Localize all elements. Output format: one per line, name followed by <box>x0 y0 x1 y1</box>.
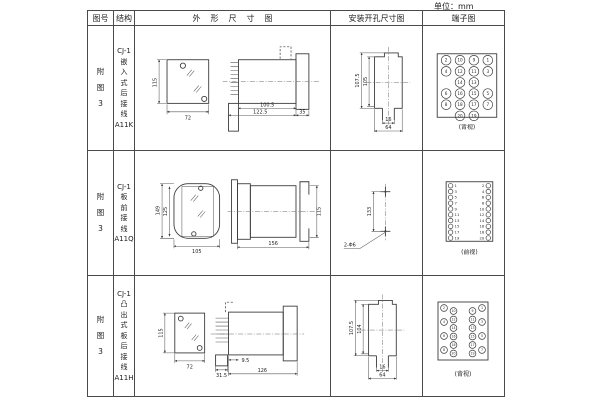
svg-text:18: 18 <box>480 231 485 235</box>
front-view: 115 72 <box>153 60 209 122</box>
side-view: 31.5 9.5 126 <box>211 302 305 379</box>
svg-text:8: 8 <box>445 102 448 107</box>
terminal-cell-row-3: 2468101214161820911131517191357 (背视) <box>423 276 504 396</box>
header-outline: 外形尺寸图 <box>135 11 331 26</box>
dim-label: 100.5 <box>260 102 274 108</box>
header-fig-no: 图号 <box>88 11 114 26</box>
mounting-cell-row-2: 133 2-Φ6 <box>331 151 423 276</box>
svg-text:4: 4 <box>443 320 445 324</box>
dim-label: 115 <box>158 328 164 337</box>
dim-label: 104 <box>357 324 363 333</box>
fig-no-row-3: 附 图 3 <box>88 276 114 396</box>
header-mounting: 安装开孔尺寸图 <box>331 11 423 26</box>
svg-text:12: 12 <box>451 318 455 322</box>
svg-text:15: 15 <box>455 225 460 229</box>
side-view: 156 115 <box>228 180 323 249</box>
terminal-diagram-a11q: 1357911131517192468101214161820 (前视) <box>423 151 504 275</box>
dim-label: 16 <box>379 365 385 371</box>
dimension-table: 图号 结构 外形尺寸图 安装开孔尺寸图 端子图 附 图 3 CJ-1 嵌 入 式… <box>87 10 505 397</box>
dim-label: 64 <box>385 125 391 131</box>
svg-text:13: 13 <box>470 326 474 330</box>
svg-text:20: 20 <box>480 236 485 240</box>
cutout-outline: 107.5 104 16 64 <box>349 294 404 379</box>
svg-text:6: 6 <box>443 334 445 338</box>
header-structure: 结构 <box>114 11 135 26</box>
terminal-cell-row-1: 2109141211314136161558181772019 (背视) <box>423 26 504 151</box>
svg-text:2: 2 <box>445 58 448 63</box>
mounting-cell-row-3: 107.5 104 16 64 <box>331 276 423 396</box>
svg-text:5: 5 <box>455 196 458 200</box>
outline-cell-row-1: 115 72 100.5 122.5 <box>135 26 331 151</box>
hole-marks: 133 2-Φ6 <box>344 184 390 249</box>
terminal-grid: 2109141211314136161558181772019 <box>441 55 492 120</box>
dim-label: 156 <box>268 241 277 247</box>
svg-text:2: 2 <box>443 306 445 310</box>
svg-text:5: 5 <box>486 91 489 96</box>
svg-text:7: 7 <box>486 102 489 107</box>
dim-label: 72 <box>185 116 191 122</box>
svg-text:1: 1 <box>486 58 489 63</box>
dim-label: 31.5 <box>216 373 227 379</box>
svg-text:5: 5 <box>481 334 483 338</box>
svg-text:2: 2 <box>482 184 485 188</box>
dim-label: 122.5 <box>253 109 267 115</box>
svg-text:12: 12 <box>457 69 463 74</box>
svg-text:7: 7 <box>481 348 483 352</box>
dim-label: 133 <box>367 207 373 216</box>
svg-text:11: 11 <box>471 69 477 74</box>
header-terminal: 端子图 <box>423 11 504 26</box>
svg-text:14: 14 <box>451 326 455 330</box>
svg-text:18: 18 <box>451 343 455 347</box>
svg-text:9: 9 <box>471 309 473 313</box>
svg-text:9: 9 <box>455 207 458 211</box>
fig-no-row-2: 附 图 3 <box>88 151 114 276</box>
dim-label: 9.5 <box>241 358 249 364</box>
outline-diagram-a11k: 115 72 100.5 122.5 <box>135 26 330 150</box>
dim-label: 35 <box>299 109 305 115</box>
dim-label: 16 <box>385 117 391 123</box>
dim-label: 64 <box>379 373 385 379</box>
svg-text:19: 19 <box>455 236 460 240</box>
svg-text:1: 1 <box>481 306 483 310</box>
svg-text:6: 6 <box>482 196 485 200</box>
svg-text:13: 13 <box>455 219 460 223</box>
outline-diagram-a11q: 149 125 105 156 <box>135 151 330 275</box>
dim-label: 125 <box>163 207 169 216</box>
svg-text:15: 15 <box>471 91 477 96</box>
front-view: 149 125 105 <box>156 184 220 255</box>
structure-row-2: CJ-1 板 前 接 线 A11Q <box>114 151 135 276</box>
svg-text:13: 13 <box>471 80 477 85</box>
side-view: 100.5 122.5 35 <box>223 47 320 131</box>
dim-label: 105 <box>363 77 369 86</box>
view-label: (背视) <box>459 123 476 131</box>
mounting-diagram-a11h: 107.5 104 16 64 <box>331 276 422 396</box>
svg-text:17: 17 <box>455 231 460 235</box>
svg-text:19: 19 <box>470 352 474 356</box>
terminal-columns: 1357911131517192468101214161820 <box>448 183 490 240</box>
terminal-diagram-a11h: 2468101214161820911131517191357 (背视) <box>423 276 504 396</box>
svg-text:16: 16 <box>451 335 455 339</box>
view-label: (前视) <box>461 248 478 256</box>
dim-label: 115 <box>153 78 159 87</box>
structure-row-1: CJ-1 嵌 入 式 后 接 线 A11K <box>114 26 135 151</box>
dim-label: 126 <box>258 368 267 374</box>
front-view: 115 72 <box>158 313 204 370</box>
outline-diagram-a11h: 115 72 31.5 9.5 <box>135 276 330 396</box>
terminal-cell-row-2: 1357911131517192468101214161820 (前视) <box>423 151 504 276</box>
svg-text:10: 10 <box>451 309 455 313</box>
svg-text:20: 20 <box>457 113 463 118</box>
svg-text:16: 16 <box>480 225 485 229</box>
hole-spec-label: 2-Φ6 <box>344 243 356 249</box>
svg-text:1: 1 <box>455 184 458 188</box>
dim-label: 107.5 <box>355 74 361 88</box>
view-label: (背视) <box>455 370 472 378</box>
dim-label: 115 <box>316 207 322 216</box>
svg-text:7: 7 <box>455 202 458 206</box>
dim-label: 149 <box>156 206 162 215</box>
svg-text:6: 6 <box>445 91 448 96</box>
structure-row-3: CJ-1 凸 出 式 板 后 接 线 A11H <box>114 276 135 396</box>
svg-text:4: 4 <box>482 190 485 194</box>
svg-text:19: 19 <box>471 113 477 118</box>
svg-text:18: 18 <box>457 102 463 107</box>
svg-text:11: 11 <box>455 213 460 217</box>
svg-text:17: 17 <box>471 102 477 107</box>
mounting-diagram-a11k: 107.5 105 16 64 <box>331 26 422 150</box>
terminal-diagram-a11k: 2109141211314136161558181772019 (背视) <box>423 26 504 150</box>
terminal-staggered: 2468101214161820911131517191357 <box>441 305 486 357</box>
svg-text:14: 14 <box>457 80 463 85</box>
dim-label: 107.5 <box>349 321 355 335</box>
svg-text:3: 3 <box>486 69 489 74</box>
svg-text:9: 9 <box>473 58 476 63</box>
manual-page: 单位：mm 图号 结构 外形尺寸图 安装开孔尺寸图 端子图 附 图 3 CJ-1… <box>0 0 600 400</box>
svg-text:14: 14 <box>480 219 485 223</box>
svg-text:16: 16 <box>457 91 463 96</box>
svg-text:10: 10 <box>457 58 463 63</box>
dim-label: 105 <box>192 249 201 255</box>
outline-cell-row-3: 115 72 31.5 9.5 <box>135 276 331 396</box>
svg-text:3: 3 <box>481 320 483 324</box>
svg-text:3: 3 <box>455 190 458 194</box>
svg-text:8: 8 <box>482 202 485 206</box>
svg-text:11: 11 <box>470 318 474 322</box>
svg-text:20: 20 <box>451 352 455 356</box>
svg-text:4: 4 <box>445 69 448 74</box>
cutout-outline: 107.5 105 16 64 <box>355 47 410 132</box>
svg-text:10: 10 <box>480 207 485 211</box>
fig-no-row-1: 附 图 3 <box>88 26 114 151</box>
svg-text:17: 17 <box>470 343 474 347</box>
svg-text:15: 15 <box>470 335 474 339</box>
dim-label: 72 <box>187 364 193 370</box>
mounting-cell-row-1: 107.5 105 16 64 <box>331 26 423 151</box>
outline-cell-row-2: 149 125 105 156 <box>135 151 331 276</box>
svg-text:8: 8 <box>443 348 445 352</box>
mounting-diagram-a11q: 133 2-Φ6 <box>331 151 422 275</box>
terminal-block-outline <box>437 54 497 117</box>
svg-text:12: 12 <box>480 213 485 217</box>
